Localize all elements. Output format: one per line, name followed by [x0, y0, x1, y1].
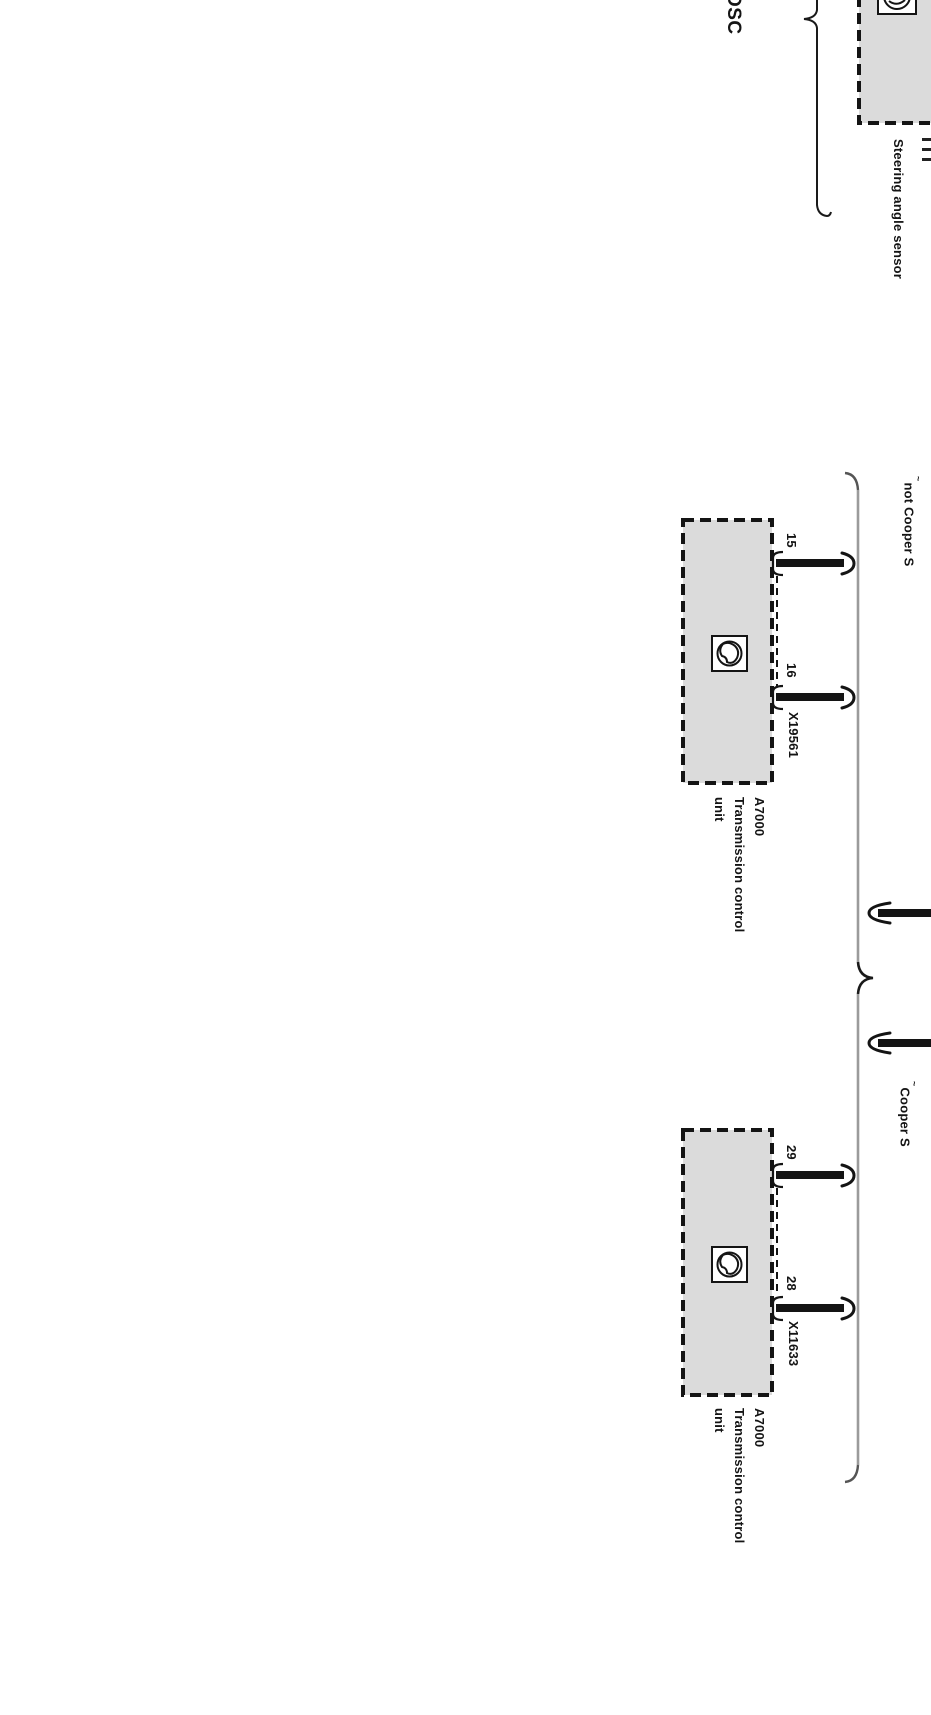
control-module-icon — [712, 1247, 747, 1282]
pin-16-wire — [776, 693, 844, 701]
dsc-group-brace — [804, 0, 831, 216]
pin-number-28: 28 — [784, 1276, 799, 1291]
unit-name-line1: Transmission control — [729, 797, 749, 932]
steering-sensor-box — [859, 0, 931, 123]
pin-29-wire — [776, 1171, 844, 1179]
footnote-mark: ~ — [913, 476, 923, 481]
unit-name-line1: Transmission control — [729, 1408, 749, 1543]
clipped-label-fragment — [922, 138, 931, 164]
steering-sensor-label: Steering angle sensor — [891, 139, 906, 279]
pin-number-29: 29 — [784, 1145, 799, 1160]
connector-id-bottom: X11633 — [786, 1321, 801, 1366]
connector-id-top: X19561 — [786, 712, 801, 758]
footnote-mark: ~ — [909, 1081, 919, 1086]
pin-number-15: 15 — [784, 533, 799, 548]
incoming-wire-bottom — [878, 1039, 931, 1047]
unit-id: A7000 — [749, 797, 769, 932]
pin-28-wire — [776, 1304, 844, 1312]
incoming-wire-top — [878, 909, 931, 917]
wiring-diagram-canvas: DSC Steering angle sensor ~not Cooper S … — [0, 0, 931, 1715]
control-module-icon — [712, 636, 747, 671]
dsc-group-label: DSC — [726, 0, 741, 35]
variant-condition-top: ~not Cooper S — [902, 476, 920, 566]
unit-id: A7000 — [749, 1408, 769, 1543]
unit-name-line2: unit — [709, 1408, 729, 1543]
unit-label-bottom: A7000 Transmission control unit — [709, 1408, 769, 1543]
pin-number-16: 16 — [784, 663, 799, 678]
unit-name-line2: unit — [709, 797, 729, 932]
diagram-graphics — [0, 0, 931, 1715]
condition-text: Cooper S — [898, 1087, 913, 1146]
variant-group-brace — [845, 473, 873, 1482]
variant-condition-bottom: ~Cooper S — [898, 1081, 916, 1147]
pin-15-wire — [776, 559, 844, 567]
unit-label-top: A7000 Transmission control unit — [709, 797, 769, 932]
condition-text: not Cooper S — [902, 482, 917, 566]
control-module-icon — [878, 0, 916, 14]
brace-point — [858, 962, 873, 994]
